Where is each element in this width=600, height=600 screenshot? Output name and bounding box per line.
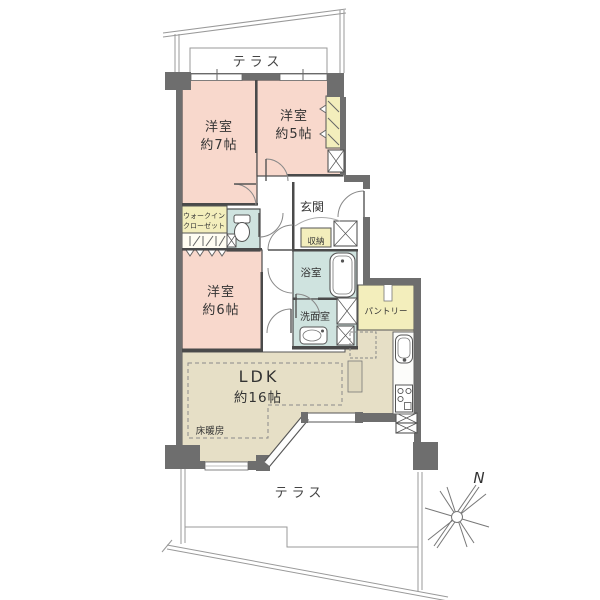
terrace-top-label: テラス <box>233 55 284 70</box>
bedroom-6-size: 約6帖 <box>202 303 239 318</box>
pantry-label: パントリー <box>365 307 408 317</box>
north-label: N <box>473 469 484 487</box>
bedroom-6-room <box>182 250 262 350</box>
bedroom-5-name: 洋室 <box>280 108 308 124</box>
bedroom-7-size: 約7帖 <box>200 138 237 153</box>
sink-icon <box>300 327 327 344</box>
entrance-step-line <box>295 217 340 226</box>
floor-plan-canvas: テラス <box>0 0 600 600</box>
compass: N <box>425 469 489 548</box>
wic-label-line2: クローゼット <box>183 221 225 230</box>
toilet-icon <box>234 215 250 242</box>
bathtub-icon <box>330 253 355 297</box>
front-door-opening <box>361 189 371 217</box>
ldk-name: LDK <box>239 367 280 386</box>
compass-center <box>452 512 463 523</box>
bedroom-7-name: 洋室 <box>205 119 233 135</box>
washroom-label: 洗面室 <box>300 310 330 323</box>
floor-heating-label: 床暖房 <box>196 425 225 437</box>
counter-end-panel <box>348 361 362 392</box>
kitchen-sink-icon <box>396 335 413 363</box>
stove-icon <box>396 385 413 412</box>
entrance-label: 玄関 <box>300 199 324 214</box>
wic-label-line1: ウォークイン <box>183 212 225 220</box>
bathroom-label: 浴室 <box>301 266 322 279</box>
ldk-size: 約16帖 <box>234 390 282 406</box>
terrace-bottom-label: テラス <box>275 486 326 501</box>
bedroom-6-name: 洋室 <box>207 284 235 300</box>
walk-in-closet-rack <box>182 233 227 249</box>
storage-label: 収納 <box>307 236 324 247</box>
floor-plan: テラス <box>0 0 600 600</box>
bedroom-5-size: 約5帖 <box>275 127 312 142</box>
